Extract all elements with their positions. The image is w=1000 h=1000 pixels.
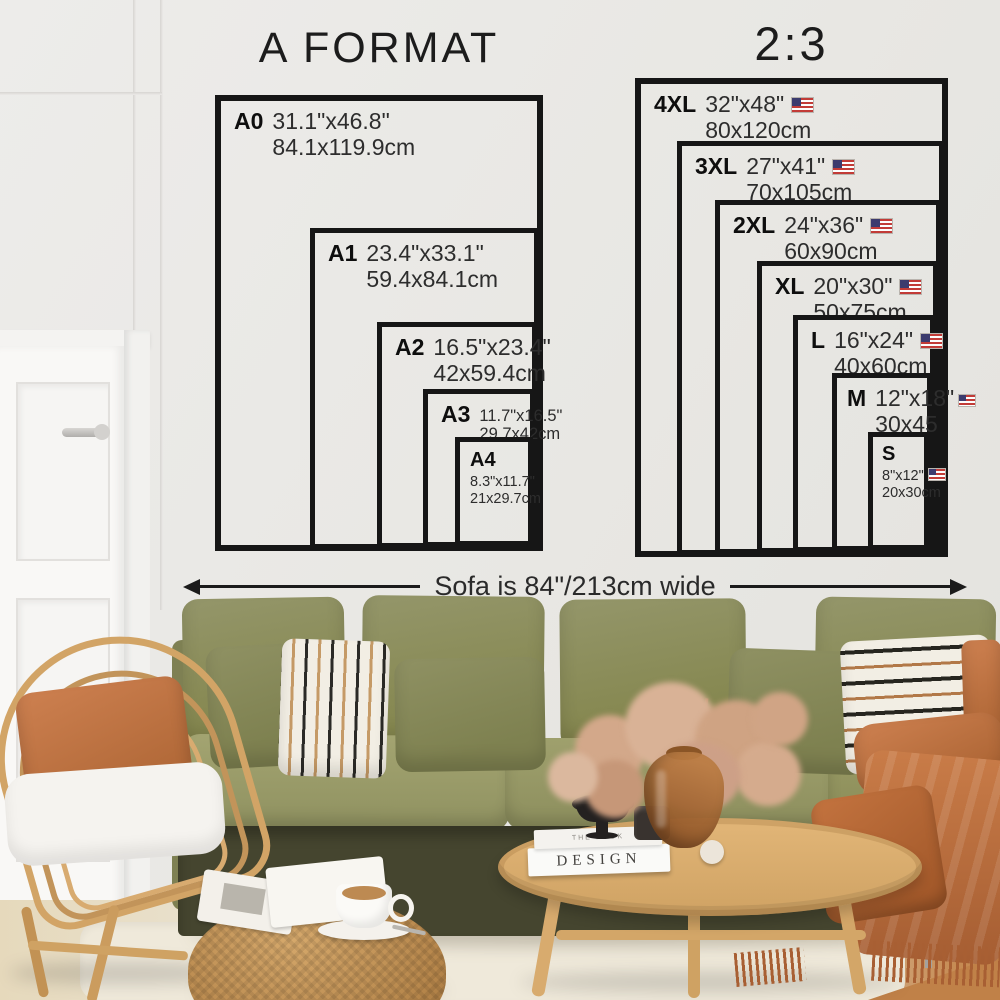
cm-text: 80x120cm xyxy=(705,118,814,144)
us-flag-icon xyxy=(791,97,814,113)
inches-text: 11.7"x16.5" xyxy=(479,407,562,425)
inches-text: 8"x12" xyxy=(882,468,924,484)
size-label: L xyxy=(811,328,825,380)
a-format-title: A FORMAT xyxy=(215,24,543,73)
inches-text: 27"x41" xyxy=(746,153,825,179)
size-dims: 27"x41"70x105cm xyxy=(746,154,855,206)
size-label: S xyxy=(882,443,946,465)
table-stretcher xyxy=(556,930,866,940)
dried-flower-cluster xyxy=(548,752,598,802)
scene: A FORMAT A0 31.1"x46.8"84.1x119.9cm A1 2… xyxy=(0,0,1000,1000)
size-label: A1 xyxy=(328,241,357,293)
size-label: A2 xyxy=(395,335,424,387)
cm-text: 59.4x84.1cm xyxy=(366,267,498,293)
dried-flower-cluster xyxy=(735,742,801,806)
us-flag-icon xyxy=(958,394,976,407)
table-leg xyxy=(688,902,700,998)
latte-top xyxy=(342,886,386,900)
inches-text: 16"x24" xyxy=(834,327,913,353)
size-label: A4 xyxy=(470,449,541,471)
size-dims: 16.5"x23.4"42x59.4cm xyxy=(433,335,550,387)
cup-handle xyxy=(388,894,414,922)
dried-flower-cluster xyxy=(752,692,808,746)
us-flag-icon xyxy=(899,279,922,295)
wall-trim-vertical-2 xyxy=(133,0,136,332)
size-dims: 31.1"x46.8"84.1x119.9cm xyxy=(272,109,415,161)
us-flag-icon xyxy=(832,159,855,175)
inches-text: 31.1"x46.8" xyxy=(272,108,389,134)
cm-text: 20x30cm xyxy=(882,485,946,501)
us-flag-icon xyxy=(870,218,893,234)
us-flag-icon xyxy=(928,468,946,481)
us-flag-icon xyxy=(920,333,943,349)
throw-fringe xyxy=(871,941,1000,988)
arrow-line xyxy=(200,585,420,588)
size-rect-a4: A4 8.3"x11.7"21x29.7cm xyxy=(455,437,533,546)
ratio-title: 2:3 xyxy=(635,16,948,71)
inches-text: 12"x18" xyxy=(875,385,954,411)
pillow-striped xyxy=(278,638,391,779)
inches-text: 20"x30" xyxy=(813,273,892,299)
pillow-olive xyxy=(394,657,546,773)
size-entry: L 16"x24"40x60cm xyxy=(811,328,943,380)
vase-highlight xyxy=(656,770,666,828)
table-shadow xyxy=(520,972,900,992)
inches-text: 16.5"x23.4" xyxy=(433,334,550,360)
door-handle-rosette xyxy=(94,424,110,440)
wall-trim-horizontal xyxy=(0,92,162,95)
size-dims: 8"x12"20x30cm xyxy=(882,468,946,501)
size-dims: 16"x24"40x60cm xyxy=(834,328,943,380)
size-rect-s: S 8"x12"20x30cm xyxy=(868,432,929,550)
inches-text: 24"x36" xyxy=(784,212,863,238)
size-entry: S 8"x12"20x30cm xyxy=(882,443,946,502)
cm-text: 84.1x119.9cm xyxy=(272,135,415,161)
arrow-line xyxy=(730,585,950,588)
size-entry: A4 8.3"x11.7"21x29.7cm xyxy=(470,449,541,508)
size-label: 2XL xyxy=(733,213,775,265)
arrow-left-icon xyxy=(183,579,200,595)
size-entry: A2 16.5"x23.4"42x59.4cm xyxy=(395,335,551,387)
size-entry: 3XL 27"x41"70x105cm xyxy=(695,154,855,206)
size-dims: 24"x36"60x90cm xyxy=(784,213,893,265)
inches-text: 23.4"x33.1" xyxy=(366,240,483,266)
cm-text: 42x59.4cm xyxy=(433,361,550,387)
size-label: A0 xyxy=(234,109,263,161)
size-dims: 8.3"x11.7"21x29.7cm xyxy=(470,474,541,507)
white-ball xyxy=(700,840,724,864)
size-label: 4XL xyxy=(654,92,696,144)
size-entry: M 12"x18"30x45 xyxy=(847,386,976,438)
size-dims: 12"x18"30x45 xyxy=(875,386,976,438)
size-dims: 32"x48"80x120cm xyxy=(705,92,814,144)
door-panel-upper xyxy=(16,382,110,561)
size-label: 3XL xyxy=(695,154,737,206)
arrow-right-icon xyxy=(950,579,967,595)
cm-text: 21x29.7cm xyxy=(470,491,541,507)
size-entry: A0 31.1"x46.8"84.1x119.9cm xyxy=(234,109,415,161)
size-dims: 23.4"x33.1"59.4x84.1cm xyxy=(366,241,498,293)
size-entry: A1 23.4"x33.1"59.4x84.1cm xyxy=(328,241,498,293)
chair-seat-cushion xyxy=(3,761,227,868)
size-label: M xyxy=(847,386,866,438)
inches-text: 8.3"x11.7" xyxy=(470,474,535,490)
throw-fringe xyxy=(734,947,807,987)
size-entry: 2XL 24"x36"60x90cm xyxy=(733,213,893,265)
size-entry: 4XL 32"x48"80x120cm xyxy=(654,92,814,144)
bowl-base xyxy=(586,832,618,839)
inches-text: 32"x48" xyxy=(705,91,784,117)
